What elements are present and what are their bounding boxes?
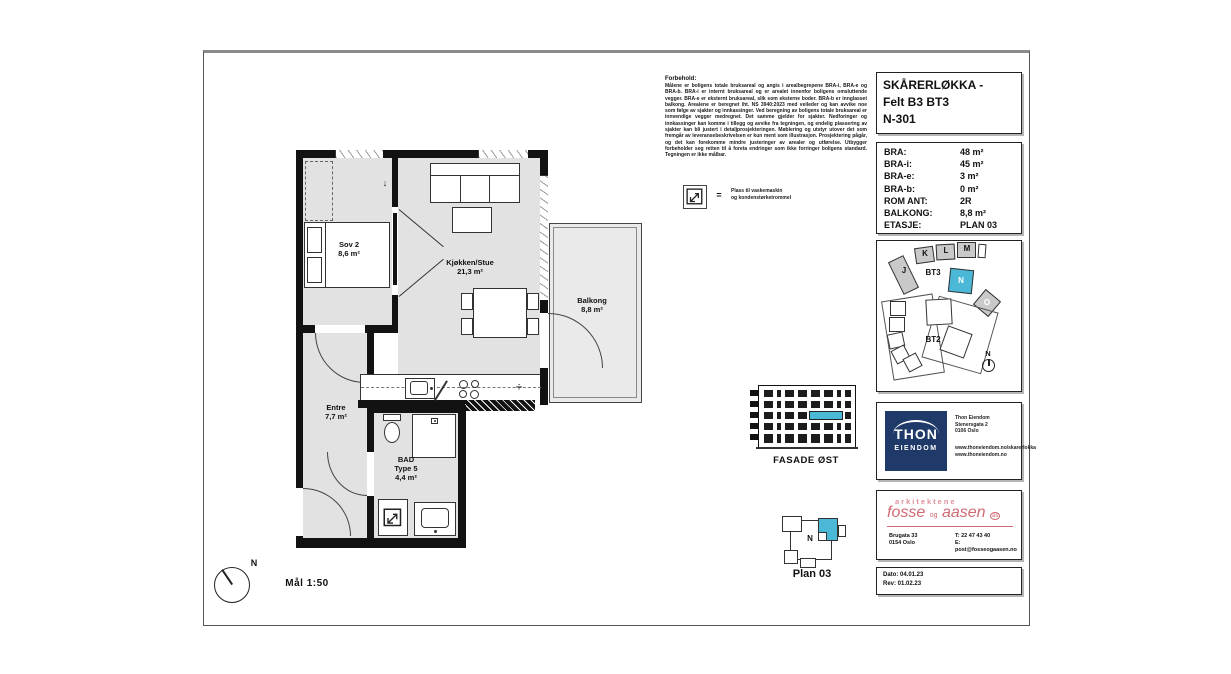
facade-label: FASADE ØST <box>773 455 839 466</box>
chair <box>527 318 539 335</box>
table-row: BRA-b:0 m² <box>877 183 1021 195</box>
label-sov2: Sov 2 8,6 m² <box>338 240 360 258</box>
site-map: J K L M BT3 N O BT2 N <box>876 240 1022 392</box>
kitchen-sink <box>405 378 435 399</box>
architect-address: Brugata 33 0154 Oslo <box>889 533 917 547</box>
label-entre: Entre 7,7 m² <box>325 403 347 421</box>
thon-logo-bottom: EIENDOM <box>894 445 937 453</box>
architect-block: arkitektene fosse og aasen as Brugata 33… <box>876 490 1022 560</box>
window <box>478 150 530 158</box>
wardrobe <box>305 161 333 221</box>
revision-block: Dato: 04.01.23 Rev: 01.02.23 <box>876 567 1022 595</box>
thon-logo: THON EIENDOM <box>885 411 947 471</box>
scale-label: Mål 1:50 <box>285 578 328 590</box>
site-building-o-label: O <box>984 298 990 308</box>
unit-number: N-301 <box>883 111 1015 128</box>
developer-block: THON EIENDOM Thon Eiendom Stenersgata 2 … <box>876 402 1022 480</box>
pillow <box>307 227 322 253</box>
table-row: BRA-i:45 m² <box>877 158 1021 170</box>
architect-contact: T: 22 47 43 40 E: post@fosseogaasen.no <box>955 533 1021 554</box>
wall-bottom <box>296 538 466 548</box>
table-row: BALKONG:8,8 m² <box>877 207 1021 219</box>
plan-key-caption: Plan 03 <box>793 568 832 581</box>
table-row: ROM ANT:2R <box>877 195 1021 207</box>
site-north-label: N <box>985 349 990 358</box>
site-label-bt2: BT2 <box>925 335 940 345</box>
dishwasher-symbol: ÷ <box>516 380 523 394</box>
site-building-l: L <box>944 246 949 256</box>
washer-shaft-icon <box>686 188 704 206</box>
plan-key-unit-label: N <box>807 534 813 544</box>
site-label-bt3: BT3 <box>925 268 940 278</box>
drawing-canvas: ÷ ↓ <box>0 0 1231 674</box>
north-arrow-icon <box>214 567 250 603</box>
washer-shaft-icon <box>383 508 403 528</box>
window <box>540 175 548 302</box>
shower <box>412 414 456 458</box>
table-row: ETASJE:PLAN 03 <box>877 219 1021 231</box>
pillow <box>307 257 322 283</box>
developer-address: Thon Eiendom Stenersgata 2 0106 Oslo <box>955 415 990 435</box>
toilet <box>383 414 401 421</box>
chair <box>461 293 473 310</box>
sliding-door-leaf <box>393 213 397 285</box>
chair <box>461 318 473 335</box>
thon-logo-top: THON <box>894 426 938 443</box>
area-table: BRA:48 m² BRA-i:45 m² BRA-e:3 m² BRA-b:0… <box>876 142 1022 234</box>
title-block: SKÅRERLØKKA - Felt B3 BT3 N-301 <box>876 72 1022 134</box>
project-title: SKÅRERLØKKA - <box>883 77 1015 94</box>
kitchen-counter <box>360 374 540 400</box>
washer <box>378 499 408 536</box>
legend-text: Plass til vaskemaskin og kondenstørketro… <box>731 188 791 201</box>
entry-arrow-icon: ↓ <box>383 178 388 189</box>
toilet-bowl <box>384 422 400 443</box>
architect-logo: fosse og aasen as <box>887 504 1013 527</box>
revision-rev: Rev: 01.02.23 <box>883 580 1015 589</box>
sofa <box>430 163 520 203</box>
label-stue: Kjøkken/Stue 21,3 m² <box>446 258 494 276</box>
facade-highlight-unit <box>809 411 843 420</box>
north-label: N <box>251 558 258 569</box>
wall-left <box>296 150 303 488</box>
legend-washer-box <box>683 185 707 209</box>
facade-windows <box>758 385 856 449</box>
table-row: BRA:48 m² <box>877 146 1021 158</box>
disclaimer-body: Målene er boligens totale bruksareal og … <box>665 83 867 159</box>
site-unit-n-label: N <box>958 276 964 286</box>
site-building-m: M <box>964 244 971 254</box>
disclaimer-block: Forbehold: Målene er boligens totale bru… <box>665 76 867 159</box>
developer-web: www.thoneiendom.no/skarerlokka www.thone… <box>955 445 1036 458</box>
project-field: Felt B3 BT3 <box>883 94 1015 111</box>
facade-drawing: FASADE ØST <box>748 383 864 475</box>
chair <box>527 293 539 310</box>
cooktop <box>457 379 489 400</box>
revision-date: Dato: 04.01.23 <box>883 571 1015 580</box>
table-row: BRA-e:3 m² <box>877 170 1021 182</box>
legend-equals: = <box>716 190 721 201</box>
disclaimer-title: Forbehold: <box>665 76 867 82</box>
coffee-table <box>452 207 492 233</box>
label-balkong: Balkong 8,8 m² <box>577 296 607 314</box>
label-bad: BAD Type 5 4,4 m² <box>394 455 417 482</box>
vanity-sink <box>414 502 456 536</box>
site-building-k: K <box>922 249 928 259</box>
dining-table <box>473 288 527 338</box>
plan-key: N Plan 03 <box>778 510 858 585</box>
window <box>335 150 385 158</box>
site-building-j: J <box>902 266 906 276</box>
